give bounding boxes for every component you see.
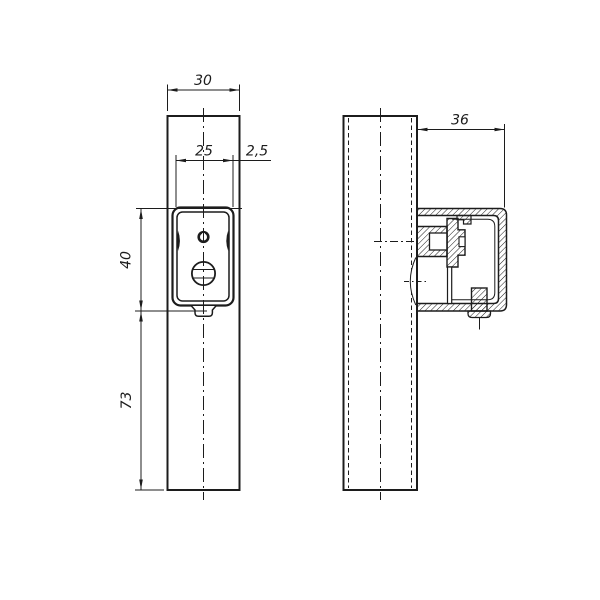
front-view: 30 25 2,5 40 73 (119, 73, 272, 500)
arrowhead (230, 88, 240, 92)
dim-label-30: 30 (194, 73, 212, 89)
arrowhead (168, 88, 178, 92)
side-section-view: 36 (344, 108, 507, 500)
housing-cover-section (417, 209, 507, 312)
fixing-screw-head (468, 311, 491, 318)
dim-label-2-5: 2,5 (246, 144, 268, 160)
arrowhead (139, 209, 143, 219)
dimension-housing-depth: 36 (418, 113, 505, 208)
divider-plate (448, 267, 452, 304)
arrowhead (495, 128, 505, 132)
arrowhead (139, 480, 143, 490)
dim-label-73: 73 (119, 392, 135, 410)
fixing-screw-section (472, 288, 488, 311)
arrowhead (418, 128, 428, 132)
dim-label-36: 36 (451, 113, 469, 129)
dim-label-40: 40 (119, 251, 135, 269)
mounting-block-notch (459, 237, 465, 247)
dim-label-25: 25 (195, 144, 213, 160)
dimension-bar-width: 30 (168, 73, 240, 111)
base-plate-clip (457, 216, 471, 225)
cylinder-keyway (430, 233, 448, 250)
arrowhead (139, 312, 143, 322)
arrowhead (139, 301, 143, 311)
drawing-svg: 30 25 2,5 40 73 (0, 0, 600, 600)
technical-drawing-page: 30 25 2,5 40 73 (0, 0, 600, 600)
